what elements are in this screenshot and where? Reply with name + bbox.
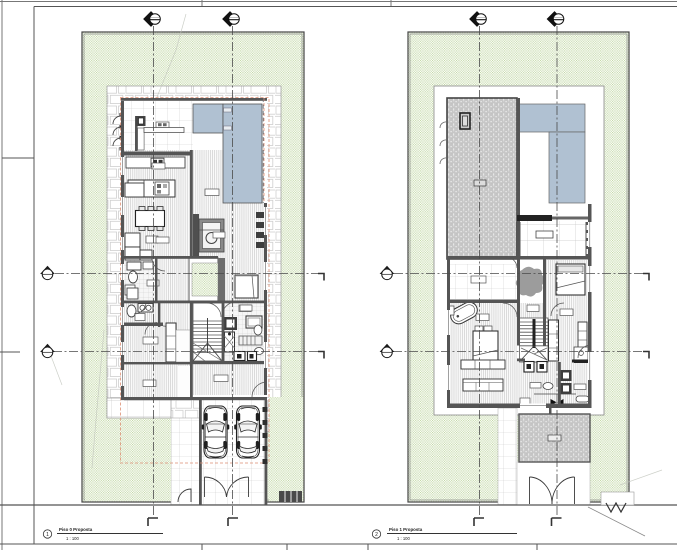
svg-text:1 : 100: 1 : 100 [397, 536, 410, 541]
svg-text:2: 2 [375, 532, 378, 538]
svg-text:1: 1 [46, 532, 49, 538]
svg-text:Piso 1 Proposta: Piso 1 Proposta [389, 527, 423, 532]
svg-text:1 : 100: 1 : 100 [66, 536, 79, 541]
svg-text:Piso 0 Proposta: Piso 0 Proposta [59, 527, 93, 532]
